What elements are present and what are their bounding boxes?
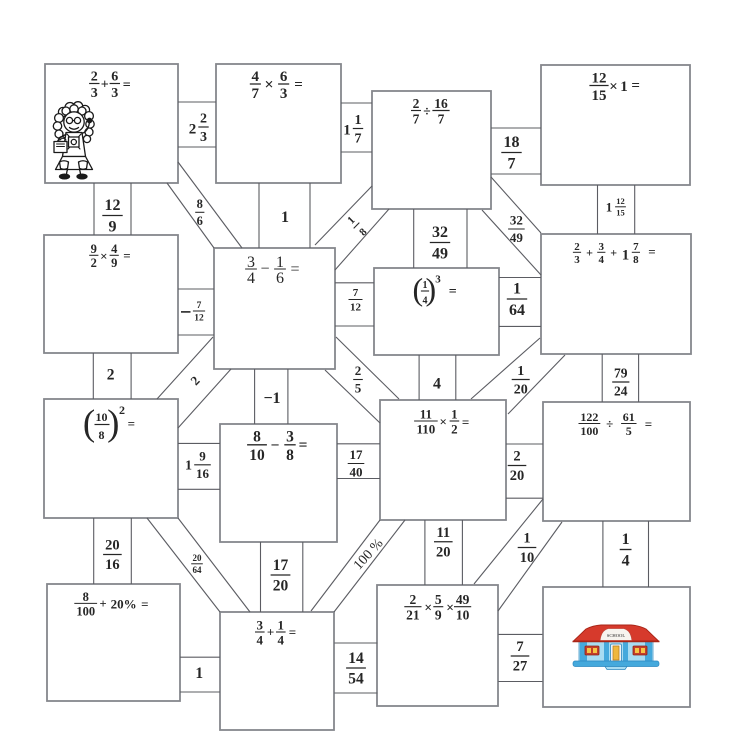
svg-text:17: 17: [273, 557, 289, 574]
svg-text:3: 3: [599, 241, 605, 253]
svg-text:2: 2: [91, 256, 97, 270]
svg-text:=: =: [123, 78, 131, 93]
svg-text:=: =: [299, 437, 308, 454]
svg-text:4: 4: [252, 69, 260, 85]
svg-text:1: 1: [185, 459, 192, 474]
svg-text:4: 4: [599, 254, 605, 266]
svg-text:3: 3: [111, 86, 118, 101]
svg-text:2: 2: [107, 367, 115, 384]
svg-text:÷: ÷: [423, 103, 430, 118]
svg-text:54: 54: [348, 671, 364, 688]
svg-text:7: 7: [516, 639, 523, 655]
svg-text:4: 4: [247, 270, 255, 287]
svg-text:=: =: [123, 248, 130, 263]
svg-text:×: ×: [100, 248, 107, 263]
svg-text:20: 20: [436, 544, 451, 560]
svg-text:7: 7: [508, 156, 516, 173]
svg-text:11: 11: [436, 525, 450, 541]
svg-text:3: 3: [435, 273, 441, 285]
svg-text:1: 1: [517, 364, 524, 379]
svg-text:1: 1: [513, 281, 521, 298]
svg-text:100: 100: [580, 424, 598, 438]
svg-text:=: =: [128, 416, 135, 431]
svg-text:20: 20: [273, 578, 289, 595]
svg-text:×: ×: [439, 414, 446, 429]
svg-text:=: =: [290, 261, 299, 278]
svg-text:+: +: [610, 246, 617, 260]
svg-text:6: 6: [197, 214, 203, 228]
svg-text:2: 2: [91, 70, 98, 85]
svg-text:1: 1: [281, 209, 289, 226]
svg-text:1: 1: [355, 113, 362, 128]
svg-text:15: 15: [616, 207, 625, 217]
svg-text:32: 32: [510, 213, 523, 228]
svg-text:1: 1: [276, 254, 284, 271]
svg-text:1: 1: [195, 665, 203, 682]
svg-text:24: 24: [614, 384, 628, 399]
svg-text:8: 8: [99, 428, 105, 442]
svg-text:1: 1: [622, 248, 630, 264]
svg-text:×: ×: [264, 77, 273, 94]
svg-text:×: ×: [609, 79, 618, 95]
svg-text:): ): [107, 403, 119, 444]
svg-text:=: =: [645, 417, 652, 432]
svg-text:−: −: [260, 260, 269, 277]
svg-text:+: +: [267, 625, 274, 640]
svg-text:3: 3: [200, 130, 207, 145]
svg-text:3: 3: [286, 428, 294, 445]
svg-text:17: 17: [350, 447, 364, 462]
svg-text:−1: −1: [263, 390, 280, 407]
svg-text:12: 12: [616, 196, 625, 206]
svg-text:9: 9: [91, 242, 97, 256]
svg-text:=: =: [631, 78, 640, 94]
svg-text:+: +: [99, 597, 106, 611]
svg-text:2: 2: [574, 241, 580, 253]
svg-text:7: 7: [633, 241, 639, 253]
svg-text:3: 3: [91, 86, 98, 101]
svg-text:16: 16: [105, 557, 120, 573]
svg-text:4: 4: [111, 242, 118, 256]
svg-text:4: 4: [622, 553, 630, 570]
svg-text:21: 21: [406, 608, 420, 623]
svg-text:9: 9: [111, 256, 117, 270]
svg-text:9: 9: [109, 219, 117, 236]
svg-text:+: +: [101, 78, 109, 93]
svg-text:16: 16: [434, 96, 448, 111]
svg-text:7: 7: [252, 86, 260, 102]
svg-text:110: 110: [417, 421, 436, 436]
svg-text:÷: ÷: [606, 416, 613, 431]
svg-text:49: 49: [456, 592, 470, 607]
svg-text:64: 64: [509, 302, 525, 319]
svg-text:79: 79: [614, 366, 628, 381]
svg-text:3: 3: [280, 86, 288, 102]
svg-text:15: 15: [592, 88, 607, 104]
svg-text:61: 61: [623, 410, 635, 424]
svg-text:12: 12: [194, 314, 204, 324]
svg-text:=: =: [449, 285, 457, 300]
svg-text:122: 122: [580, 410, 598, 424]
svg-text:9: 9: [199, 449, 206, 464]
svg-text:2: 2: [413, 96, 420, 111]
svg-text:4: 4: [278, 632, 285, 647]
svg-text:7: 7: [438, 111, 445, 126]
svg-text:49: 49: [432, 246, 448, 263]
svg-text:18: 18: [504, 134, 520, 151]
svg-text:5: 5: [626, 424, 632, 438]
svg-text:=: =: [462, 415, 469, 430]
svg-text:2: 2: [189, 122, 197, 138]
svg-text:12: 12: [105, 197, 121, 214]
svg-text:16: 16: [196, 466, 210, 481]
svg-text:1: 1: [343, 123, 351, 139]
svg-text:1: 1: [620, 79, 628, 95]
svg-text:−: −: [271, 437, 280, 454]
svg-text:10: 10: [249, 447, 265, 464]
svg-text:40: 40: [350, 465, 363, 480]
svg-text:8: 8: [286, 447, 294, 464]
svg-text:=: =: [648, 244, 655, 259]
svg-text:8: 8: [197, 197, 203, 211]
svg-text:11: 11: [420, 406, 432, 421]
svg-text:=: =: [289, 625, 296, 640]
svg-text:2: 2: [513, 449, 520, 465]
svg-text:10: 10: [96, 410, 108, 424]
svg-text:1: 1: [278, 617, 285, 632]
svg-text:6: 6: [276, 270, 284, 287]
svg-text:64: 64: [193, 565, 203, 575]
svg-text:20%: 20%: [111, 597, 137, 612]
svg-text:12: 12: [592, 71, 607, 87]
svg-text:7: 7: [355, 132, 362, 147]
svg-text:=: =: [141, 597, 148, 612]
svg-text:2: 2: [410, 592, 417, 607]
svg-text:10: 10: [456, 608, 470, 623]
svg-text:20: 20: [514, 383, 528, 398]
svg-text:3: 3: [247, 254, 255, 271]
svg-text:10: 10: [520, 550, 535, 566]
svg-text:20: 20: [510, 468, 525, 484]
svg-text:14: 14: [348, 650, 364, 667]
svg-text:1: 1: [523, 531, 530, 547]
svg-text:1: 1: [622, 531, 630, 548]
svg-text:100: 100: [76, 604, 95, 618]
svg-text:3: 3: [574, 254, 580, 266]
svg-text:2: 2: [200, 111, 207, 126]
svg-text:SCHOOL: SCHOOL: [607, 633, 626, 638]
svg-text:5: 5: [355, 381, 362, 396]
svg-text:(: (: [83, 403, 95, 444]
svg-text:+: +: [586, 246, 593, 260]
svg-text:3: 3: [257, 617, 264, 632]
svg-text:4: 4: [257, 632, 264, 647]
svg-text:7: 7: [197, 301, 202, 311]
svg-text:20: 20: [193, 553, 203, 563]
svg-text:6: 6: [111, 70, 118, 85]
svg-text:×: ×: [424, 600, 432, 615]
svg-text:4: 4: [433, 375, 441, 392]
svg-text:5: 5: [435, 592, 442, 607]
svg-text:27: 27: [513, 659, 528, 675]
svg-text:9: 9: [435, 608, 442, 623]
svg-text:20: 20: [105, 538, 120, 554]
svg-text:1: 1: [451, 406, 458, 421]
svg-text:=: =: [294, 77, 303, 93]
svg-text:8: 8: [633, 254, 639, 266]
svg-text:2: 2: [355, 363, 362, 378]
svg-text:1: 1: [606, 200, 613, 215]
svg-text:7: 7: [353, 287, 359, 299]
svg-text:6: 6: [280, 69, 288, 85]
svg-text:12: 12: [350, 302, 362, 314]
svg-text:8: 8: [253, 428, 261, 445]
svg-text:2: 2: [451, 421, 458, 436]
svg-text:×: ×: [446, 600, 454, 615]
svg-text:49: 49: [510, 230, 524, 245]
svg-text:8: 8: [83, 590, 89, 604]
svg-text:32: 32: [432, 224, 448, 241]
svg-text:2: 2: [119, 403, 125, 417]
svg-text:7: 7: [413, 111, 420, 126]
